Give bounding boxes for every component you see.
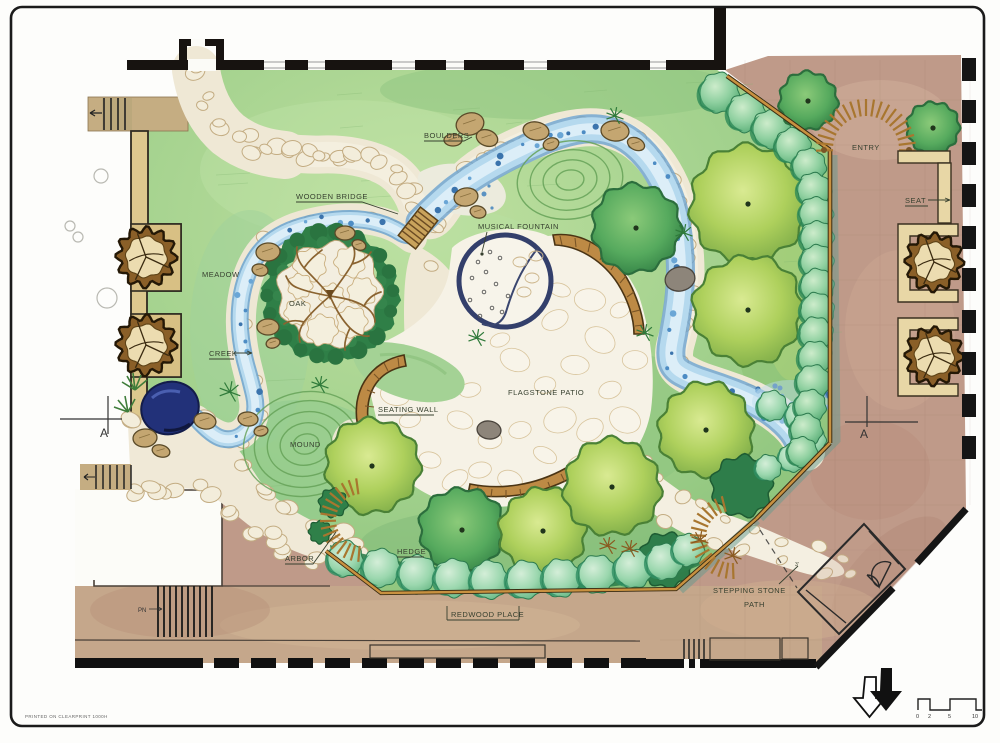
svg-text:ENTRY: ENTRY — [852, 143, 880, 152]
svg-text:FLAGSTONE PATIO: FLAGSTONE PATIO — [508, 388, 584, 397]
svg-text:2: 2 — [928, 714, 931, 720]
svg-text:MEADOW: MEADOW — [202, 270, 240, 279]
svg-text:3': 3' — [795, 562, 799, 568]
svg-text:SEATING WALL: SEATING WALL — [378, 405, 439, 414]
svg-text:A: A — [860, 427, 868, 441]
svg-text:MUSICAL FOUNTAIN: MUSICAL FOUNTAIN — [478, 222, 559, 231]
svg-text:PN: PN — [138, 608, 146, 614]
svg-text:WOODEN BRIDGE: WOODEN BRIDGE — [296, 192, 368, 201]
svg-text:PRINTED ON CLEARPRINT 1000H: PRINTED ON CLEARPRINT 1000H — [25, 714, 108, 719]
svg-text:10: 10 — [972, 714, 978, 720]
svg-text:SEAT: SEAT — [905, 196, 926, 205]
svg-text:MOUND: MOUND — [290, 440, 321, 449]
svg-text:ARBOR: ARBOR — [285, 554, 314, 563]
svg-text:BOULDERS: BOULDERS — [424, 131, 469, 140]
svg-text:PATH: PATH — [744, 600, 765, 609]
svg-text:REDWOOD PLACE: REDWOOD PLACE — [451, 610, 524, 619]
svg-text:OAK: OAK — [289, 299, 306, 308]
svg-text:0: 0 — [916, 714, 919, 720]
svg-text:5: 5 — [948, 714, 951, 720]
svg-text:A: A — [100, 426, 108, 440]
svg-text:STEPPING STONE: STEPPING STONE — [713, 586, 786, 595]
svg-text:CREEK: CREEK — [209, 349, 237, 358]
svg-text:HEDGE: HEDGE — [397, 547, 426, 556]
